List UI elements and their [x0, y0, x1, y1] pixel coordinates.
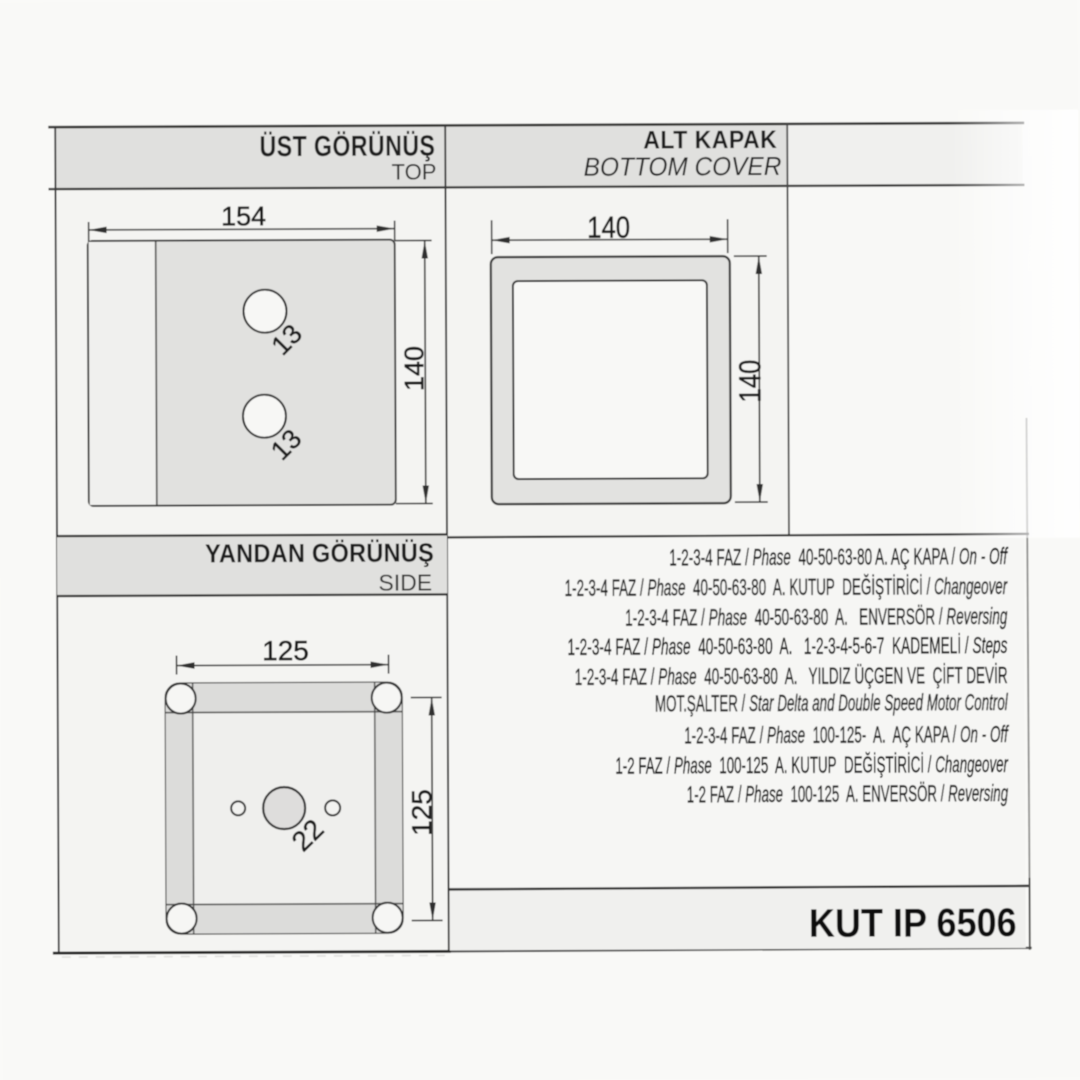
- svg-text:1-2-3-4 FAZ / Phase 40-50-63-: 1-2-3-4 FAZ / Phase 40-50-63-80 A. 1-2-3…: [567, 634, 1007, 661]
- svg-text:1-2-3-4 FAZ / Phase 40-50-63-: 1-2-3-4 FAZ / Phase 40-50-63-80 A. KUTUP…: [565, 573, 1008, 601]
- svg-text:KUT IP 6506: KUT IP 6506: [809, 901, 1017, 946]
- svg-text:1-2-3-4 FAZ / Phase 40-50-63-: 1-2-3-4 FAZ / Phase 40-50-63-80 A. AÇ KA…: [669, 543, 1008, 570]
- svg-text:125: 125: [262, 635, 309, 666]
- svg-text:ÜST GÖRÜNÜŞ: ÜST GÖRÜNÜŞ: [259, 129, 435, 163]
- svg-text:154: 154: [221, 201, 266, 231]
- svg-text:1-2 FAZ / Phase 100-125 A. E: 1-2 FAZ / Phase 100-125 A. ENVERSÖR / Re…: [687, 780, 1009, 807]
- svg-text:1-2 FAZ / Phase 100-125 A. K: 1-2 FAZ / Phase 100-125 A. KUTUP DEĞİŞTİ…: [615, 751, 1008, 778]
- svg-text:SIDE: SIDE: [378, 569, 432, 595]
- svg-text:1-2-3-4 FAZ / Phase 40-50-63-: 1-2-3-4 FAZ / Phase 40-50-63-80 A. YILDI…: [575, 662, 1008, 689]
- svg-text:BOTTOM COVER: BOTTOM COVER: [584, 152, 782, 182]
- svg-text:140: 140: [733, 360, 768, 403]
- svg-text:1-2-3-4 FAZ / Phase 100-125-: 1-2-3-4 FAZ / Phase 100-125- A. AÇ KAPA …: [684, 721, 1009, 748]
- svg-text:ALT KAPAK: ALT KAPAK: [643, 126, 777, 155]
- svg-text:140: 140: [587, 210, 630, 245]
- svg-text:YANDAN GÖRÜNÜŞ: YANDAN GÖRÜNÜŞ: [205, 539, 434, 568]
- svg-text:125: 125: [406, 789, 437, 836]
- svg-text:MOT.ŞALTER / Star Delta and Do: MOT.ŞALTER / Star Delta and Double Speed…: [655, 689, 1008, 716]
- svg-text:1-2-3-4 FAZ / Phase 40-50-63-: 1-2-3-4 FAZ / Phase 40-50-63-80 A. ENVER…: [625, 603, 1008, 630]
- svg-text:TOP: TOP: [392, 159, 437, 184]
- svg-text:140: 140: [399, 346, 429, 391]
